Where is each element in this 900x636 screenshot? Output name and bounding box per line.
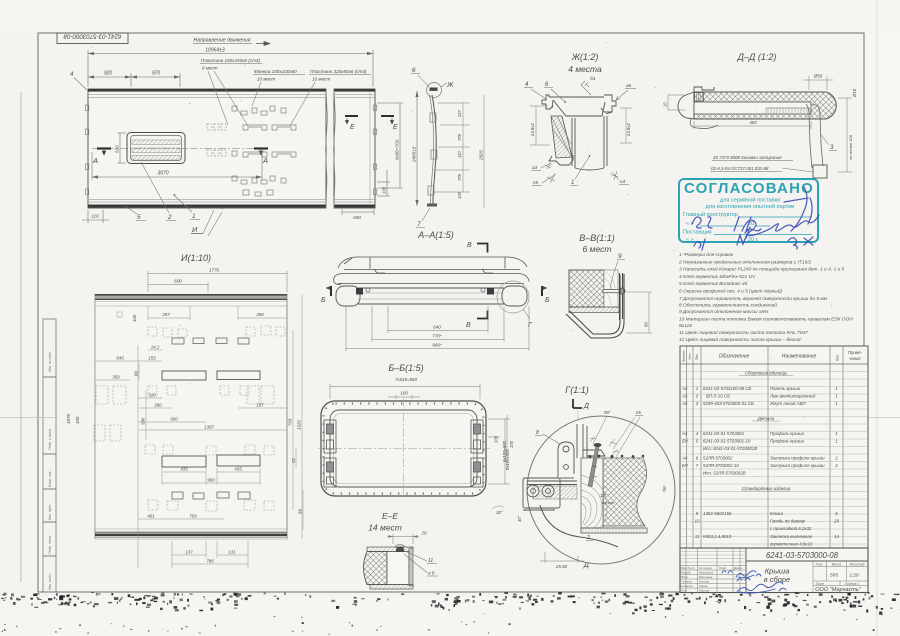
svg-text:Нагорный: Нагорный	[699, 571, 713, 575]
svg-text:Ж: Ж	[446, 82, 454, 89]
svg-text:18°: 18°	[600, 493, 607, 498]
svg-text:1878: 1878	[66, 414, 71, 424]
svg-text:350: 350	[112, 375, 120, 380]
svg-text:А4: А4	[681, 386, 688, 391]
svg-text:2: 2	[586, 535, 590, 541]
svg-text:10: 10	[663, 102, 668, 107]
svg-text:297: 297	[161, 312, 170, 317]
svg-text:920: 920	[104, 71, 113, 77]
svg-text:Поставщик: Поставщик	[683, 230, 712, 236]
svg-text:1776: 1776	[209, 268, 220, 273]
svg-text:900: 900	[207, 478, 215, 483]
svg-text:30°: 30°	[517, 515, 522, 522]
svg-text:187: 187	[256, 403, 264, 408]
svg-text:1:20: 1:20	[849, 573, 859, 579]
svg-text:435: 435	[180, 467, 188, 472]
svg-text:И(1:10): И(1:10)	[181, 253, 211, 263]
svg-text:6241-03-5703100-08 СБ: 6241-03-5703100-08 СБ	[703, 386, 751, 391]
svg-text:280: 280	[153, 403, 162, 408]
svg-text:Формат: Формат	[682, 350, 686, 362]
svg-text:Д: Д	[583, 403, 589, 410]
svg-text:6 мест: 6 мест	[583, 244, 612, 254]
svg-text:Б–Б(1:5): Б–Б(1:5)	[388, 363, 423, 373]
svg-text:« »: « »	[686, 237, 694, 243]
svg-text:24,8±2: 24,8±2	[530, 123, 535, 137]
svg-text:5: 5	[137, 214, 141, 221]
svg-text:3 Наносить клей Körapur PL240: 3 Наносить клей Körapur PL240 по площади…	[679, 266, 844, 273]
svg-text:970: 970	[152, 71, 161, 77]
svg-text:Заглушка профиля крыши: Заглушка профиля крыши	[770, 463, 825, 468]
svg-text:9: 9	[618, 253, 622, 260]
svg-text:Исп. 52ЛЯ-5703002В: Исп. 52ЛЯ-5703002В	[703, 471, 746, 476]
svg-text:Утв.: Утв.	[681, 589, 688, 593]
svg-text:29: 29	[833, 519, 839, 524]
svg-text:320: 320	[148, 393, 156, 398]
svg-text:45 7373 9008 Канавки затирания: 45 7373 9008 Канавки затирания	[713, 155, 782, 160]
svg-text:2626: 2626	[479, 150, 484, 161]
svg-text:Заклепка вытяжная: Заклепка вытяжная	[770, 534, 813, 539]
svg-text:СОГЛАСОВАНО: СОГЛАСОВАНО	[684, 180, 814, 197]
svg-text:Заглушка профиля крыши: Заглушка профиля крыши	[770, 456, 825, 461]
svg-text:Панель крыши: Панель крыши	[770, 386, 801, 391]
svg-text:БЧ: БЧ	[682, 439, 688, 444]
svg-text:Лит.: Лит.	[815, 562, 824, 566]
svg-text:450: 450	[749, 120, 757, 125]
svg-text:Б: Б	[545, 297, 550, 304]
svg-text:100: 100	[400, 391, 408, 396]
svg-text:Б: Б	[321, 297, 326, 304]
svg-text:640: 640	[433, 325, 441, 330]
svg-text:1520: 1520	[297, 420, 302, 430]
svg-text:№118: №118	[679, 323, 692, 329]
svg-text:Инв. дубл.: Инв. дубл.	[48, 504, 52, 520]
svg-text:Е: Е	[350, 124, 355, 131]
svg-text:100: 100	[494, 435, 499, 443]
svg-text:6241-03-01-5703001: 6241-03-01-5703001	[703, 431, 745, 436]
svg-text:690: 690	[353, 215, 361, 220]
svg-text:20 г.: 20 г.	[748, 237, 759, 243]
svg-text:ООО "Марчасть": ООО "Марчасть"	[815, 587, 862, 593]
svg-text:6241-03-01-5703001-10: 6241-03-01-5703001-10	[703, 439, 751, 444]
svg-text:11: 11	[695, 534, 700, 539]
svg-text:580: 580	[141, 417, 146, 425]
svg-text:645: 645	[116, 356, 124, 361]
svg-text:7: 7	[417, 221, 421, 228]
svg-text:770*: 770*	[432, 334, 442, 339]
svg-text:Листов 1: Листов 1	[844, 582, 859, 586]
svg-text:703: 703	[288, 418, 293, 426]
svg-text:А3: А3	[681, 394, 688, 399]
svg-text:Дата: Дата	[733, 566, 742, 570]
svg-text:Обозначение: Обозначение	[719, 354, 750, 360]
svg-text:1307: 1307	[204, 425, 214, 430]
svg-text:6241-03-5703000-08: 6241-03-5703000-08	[63, 33, 121, 40]
svg-text:Детали: Детали	[757, 416, 775, 421]
svg-text:Подп. дата: Подп. дата	[48, 535, 52, 554]
svg-text:14,2: 14,2	[151, 345, 160, 350]
svg-text:Жуков: Жуков	[698, 584, 708, 588]
svg-text:Т.контр.: Т.контр.	[681, 580, 693, 584]
svg-text:600: 600	[174, 279, 182, 284]
svg-text:Г(1:1): Г(1:1)	[565, 385, 588, 395]
svg-text:12 Цвет лицевой поверхности ли: 12 Цвет лицевой поверхности листа крыши …	[679, 336, 801, 343]
svg-text:Н.контр.: Н.контр.	[681, 584, 694, 588]
svg-text:20: 20	[421, 531, 427, 536]
svg-text:100: 100	[75, 416, 80, 424]
svg-text:100: 100	[382, 186, 387, 194]
svg-text:1: 1	[192, 213, 196, 220]
svg-text:Лист: Лист	[815, 582, 825, 586]
svg-text:2485±3: 2485±3	[412, 146, 417, 163]
svg-text:Подп.: Подп.	[719, 566, 727, 570]
svg-text:703: 703	[189, 514, 197, 519]
svg-text:В–В(1:1): В–В(1:1)	[579, 233, 615, 243]
svg-text:52ЛЯ-5703002: 52ЛЯ-5703002	[703, 456, 733, 461]
svg-text:1302-5602156: 1302-5602156	[703, 511, 732, 516]
svg-text:2: 2	[695, 394, 699, 399]
svg-text:10 Материал листа потолка Ваке: 10 Материал листа потолка Вакем соответс…	[679, 316, 853, 322]
svg-text:Ø18: Ø18	[852, 88, 857, 98]
svg-text:А4: А4	[681, 431, 688, 436]
svg-text:Исп. 6241-03-01-5703001В: Исп. 6241-03-01-5703001В	[703, 446, 757, 451]
svg-text:а6: а6	[626, 83, 632, 88]
svg-text:Васильев: Васильев	[699, 575, 713, 579]
svg-text:100: 100	[509, 440, 514, 448]
svg-text:Фанера 100х100х60: Фанера 100х100х60	[254, 69, 297, 74]
svg-text:Сборочные единицы: Сборочные единицы	[745, 371, 788, 376]
svg-text:100: 100	[132, 314, 137, 322]
svg-text:02-6,3-04 ОСТ37.001.032-88: 02-6,3-04 ОСТ37.001.032-88	[711, 166, 769, 171]
svg-text:В: В	[466, 322, 471, 329]
svg-text:А–А(1:5): А–А(1:5)	[417, 230, 454, 240]
svg-text:9 Допускается отклонение масс: 9 Допускается отклонение массы ±5%	[679, 309, 769, 315]
svg-text:Инв. № подл.: Инв. № подл.	[48, 351, 52, 372]
svg-text:11 Цвет лицевой поверхности ли: 11 Цвет лицевой поверхности листа потолк…	[679, 329, 808, 336]
svg-text:ВЛ-Э-10 СБ: ВЛ-Э-10 СБ	[706, 394, 730, 399]
svg-text:4 Клей-герметик SikaFlex-521: 4 Клей-герметик SikaFlex-521 UV	[679, 273, 756, 280]
svg-text:401: 401	[147, 514, 155, 519]
svg-text:60: 60	[644, 322, 649, 327]
svg-text:Разраб.: Разраб.	[681, 571, 692, 575]
svg-text:8 Обеспечить герметичность со: 8 Обеспечить герметичность соединений	[679, 301, 777, 308]
svg-text:52ЛЯ-5703002-10: 52ЛЯ-5703002-10	[703, 463, 739, 468]
svg-text:а3: а3	[532, 165, 538, 170]
svg-text:Приме-: Приме-	[848, 350, 863, 355]
svg-text:Поз.: Поз.	[695, 353, 699, 360]
svg-text:А4: А4	[681, 401, 688, 406]
svg-text:Профиль крыши: Профиль крыши	[770, 431, 805, 436]
svg-text:6: 6	[412, 67, 416, 74]
svg-text:530: 530	[115, 145, 120, 153]
svg-text:К553,2,4,8010: К553,2,4,8010	[703, 534, 732, 539]
svg-text:10964±3: 10964±3	[205, 48, 225, 54]
svg-text:1: 1	[571, 180, 574, 186]
svg-text:Гвоздь по дереву: Гвоздь по дереву	[770, 519, 806, 524]
svg-text:5 Клей-герметик Виладокс-45: 5 Клей-герметик Виладокс-45	[679, 280, 748, 287]
svg-text:2: 2	[834, 456, 838, 461]
svg-text:Е: Е	[393, 124, 398, 131]
svg-text:137: 137	[185, 550, 193, 555]
svg-text:100: 100	[457, 191, 462, 199]
svg-text:И: И	[192, 225, 198, 234]
svg-text:не зав.: не зав.	[602, 500, 615, 505]
svg-text:№ докум.: № докум.	[699, 566, 712, 570]
svg-text:Пров.: Пров.	[681, 575, 689, 579]
svg-text:Подп. и дата: Подп. и дата	[48, 429, 52, 450]
svg-text:600: 600	[170, 417, 178, 422]
svg-text:280: 280	[255, 312, 264, 317]
svg-text:не менее 320: не менее 320	[848, 134, 853, 160]
svg-text:6241-03-5703000-08: 6241-03-5703000-08	[766, 550, 838, 560]
svg-text:Профиль крыши: Профиль крыши	[770, 439, 805, 444]
svg-text:14: 14	[834, 534, 839, 539]
svg-text:705: 705	[457, 173, 462, 181]
svg-text:6 мест: 6 мест	[202, 66, 218, 71]
svg-text:5х100=500: 5х100=500	[502, 440, 507, 462]
svg-text:Клюка: Клюка	[770, 511, 783, 516]
svg-text:Жгут линий АВЛ: Жгут линий АВЛ	[769, 401, 806, 406]
svg-text:Пластина 320х80х6 (ст3): Пластина 320х80х6 (ст3)	[310, 69, 367, 74]
svg-text:435: 435	[234, 467, 242, 472]
svg-text:п.9: п.9	[428, 571, 435, 576]
svg-text:705: 705	[457, 133, 462, 141]
svg-text:3070: 3070	[157, 171, 168, 177]
svg-text:1 *Размеры для справок: 1 *Размеры для справок	[679, 252, 734, 258]
svg-text:5299-403-5703003-01 СБ: 5299-403-5703003-01 СБ	[703, 401, 754, 406]
svg-text:Пластина 150х150х6 (ст3): Пластина 150х150х6 (ст3)	[201, 58, 260, 63]
svg-text:24,8±2: 24,8±2	[626, 123, 631, 137]
svg-text:Лист: Лист	[686, 566, 695, 570]
svg-text:14 мест: 14 мест	[368, 523, 402, 533]
svg-text:80: 80	[134, 371, 139, 376]
svg-text:131: 131	[228, 550, 236, 555]
svg-text:155: 155	[148, 356, 156, 361]
svg-text:7х510=840: 7х510=840	[395, 377, 417, 382]
svg-text:В: В	[467, 242, 472, 249]
svg-text:Кол.: Кол.	[836, 354, 840, 361]
svg-text:Зона: Зона	[688, 353, 692, 360]
svg-text:Д–Д (1:2): Д–Д (1:2)	[737, 52, 777, 62]
svg-text:6х80=700: 6х80=700	[395, 139, 400, 160]
svg-text:52: 52	[291, 458, 296, 463]
svg-text:90°: 90°	[604, 410, 611, 415]
svg-text:Наименование: Наименование	[782, 354, 817, 360]
svg-text:н4: н4	[620, 179, 626, 184]
svg-text:Инв. подл.: Инв. подл.	[48, 574, 52, 590]
svg-text:п5: п5	[636, 410, 641, 415]
svg-text:10 мест: 10 мест	[257, 77, 275, 82]
svg-text:БЧ: БЧ	[682, 463, 688, 468]
svg-text:б4: б4	[590, 76, 596, 81]
svg-text:30°: 30°	[496, 510, 503, 515]
svg-text:с прокладкой 6,2х32: с прокладкой 6,2х32	[770, 526, 812, 531]
svg-text:А: А	[92, 156, 98, 165]
svg-text:п5: п5	[533, 180, 539, 185]
svg-text:110: 110	[457, 151, 462, 158]
svg-text:Масса: Масса	[832, 562, 842, 566]
svg-text:для серийной поставки: для серийной поставки	[720, 197, 780, 204]
svg-text:10 мест: 10 мест	[312, 77, 330, 82]
svg-text:66: 66	[298, 509, 303, 514]
svg-text:25,50: 25,50	[555, 564, 568, 569]
svg-text:10: 10	[695, 519, 700, 524]
svg-text:Направление движения: Направление движения	[193, 38, 250, 44]
svg-text:для изготовления опытной парти: для изготовления опытной партии	[706, 203, 795, 210]
svg-text:227: 227	[457, 109, 462, 118]
svg-text:Взам. инв.: Взам. инв.	[48, 471, 52, 487]
svg-text:Масштаб: Масштаб	[850, 562, 865, 566]
svg-text:Стандартные изделия: Стандартные изделия	[742, 486, 791, 491]
svg-text:Ø50: Ø50	[813, 74, 823, 79]
svg-text:2: 2	[834, 463, 838, 468]
svg-text:6 Окраска профилей поз. 4 и 5: 6 Окраска профилей поз. 4 и 5 (цвет чёрн…	[679, 288, 783, 295]
svg-text:595: 595	[830, 573, 838, 579]
svg-text:Карпов: Карпов	[699, 589, 709, 593]
svg-text:Ж(1:2): Ж(1:2)	[571, 52, 599, 62]
svg-text:2 Неуказанные предельные откл: 2 Неуказанные предельные отклонения разм…	[678, 259, 812, 265]
svg-text:110: 110	[91, 214, 99, 219]
svg-text:786: 786	[206, 559, 214, 564]
svg-text:4 места: 4 места	[568, 64, 602, 74]
svg-text:Люк вентиляционный: Люк вентиляционный	[769, 394, 816, 399]
svg-text:герметичная 4,8х10: герметичная 4,8х10	[770, 542, 813, 547]
svg-text:11: 11	[428, 558, 433, 564]
svg-text:8: 8	[536, 430, 539, 436]
svg-text:Носова: Носова	[699, 580, 710, 584]
svg-text:Е–Е: Е–Е	[382, 511, 398, 521]
svg-text:чание: чание	[849, 356, 861, 361]
svg-text:7 Допускается неровность верх: 7 Допускается неровность верхней поверхн…	[679, 295, 828, 302]
svg-text:А4: А4	[681, 456, 688, 461]
svg-text:2: 2	[167, 214, 172, 221]
svg-text:966*: 966*	[432, 343, 442, 348]
